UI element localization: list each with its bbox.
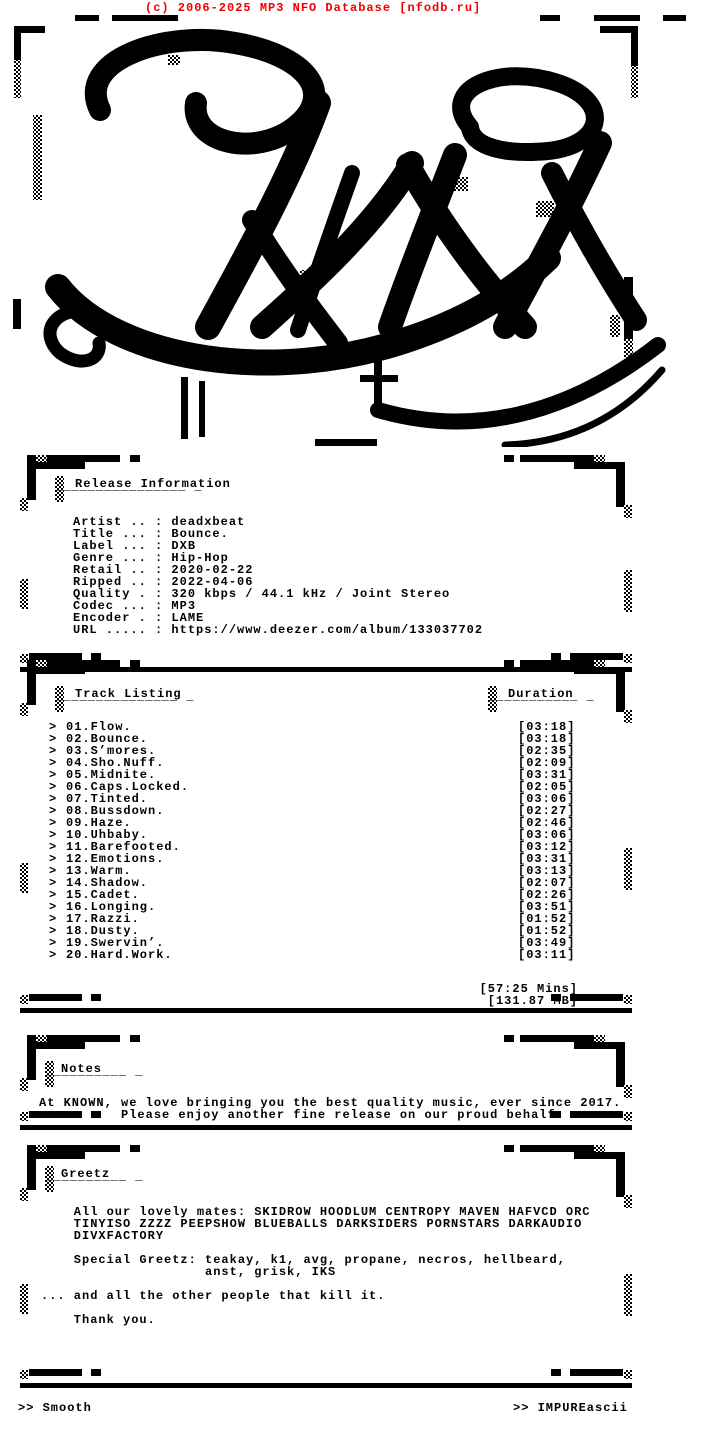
- known-ascii-logo: sM: [0, 15, 720, 447]
- logo-sm-mark: sM: [582, 122, 600, 137]
- greetz-text: All our lovely mates: SKIDROW HOODLUM CE…: [41, 1206, 590, 1326]
- track-row: > 20.Hard.Work. [03:11]: [49, 949, 578, 961]
- release-info-box: Release Information ¯¯¯¯¯¯¯¯¯¯¯¯¯¯¯¯ ¯ A…: [20, 450, 632, 672]
- track-title: 12.Emotions.: [66, 853, 518, 865]
- track-listing-box: Track Listing ¯¯¯¯¯¯¯¯¯¯¯¯¯¯¯ ¯ Duration…: [20, 655, 632, 1013]
- section-underline: ¯¯¯¯¯¯¯¯¯¯ ¯: [45, 1180, 143, 1192]
- section-underline: ¯¯¯¯¯¯¯¯¯¯¯ ¯: [488, 700, 595, 712]
- release-info-lines: Artist .. : deadxbeat Title ... : Bounce…: [73, 516, 483, 636]
- section-underline: ¯¯¯¯¯¯¯¯¯¯¯¯¯¯¯ ¯: [55, 700, 194, 712]
- track-prefix: >: [49, 949, 66, 961]
- footer-group-name: >> Smooth: [18, 1402, 92, 1414]
- section-underline: ¯¯¯¯¯¯¯¯¯¯¯¯¯¯¯¯ ¯: [55, 490, 203, 502]
- notes-text: At KNOWN, we love bringing you the best …: [39, 1097, 621, 1121]
- footer-ascii-credit: >> IMPUREascii: [513, 1402, 628, 1414]
- section-underline: ¯¯¯¯¯¯¯¯¯¯ ¯: [45, 1075, 143, 1087]
- total-size: [131.87 MB]: [478, 995, 578, 1007]
- track-title: 20.Hard.Work.: [66, 949, 518, 961]
- track-duration: [03:11]: [518, 949, 578, 961]
- greetz-box: Greetz ¯¯¯¯¯¯¯¯¯¯ ¯ All our lovely mates…: [20, 1140, 632, 1388]
- track-rows: > 01.Flow. [03:18] > 02.Bounce. [03:18] …: [49, 721, 578, 961]
- nfodb-banner: (c) 2006-2025 MP3 NFO Database [nfodb.ru…: [145, 2, 481, 14]
- notes-box: Notes ¯¯¯¯¯¯¯¯¯¯ ¯ At KNOWN, we love bri…: [20, 1030, 632, 1130]
- track-title: 08.Bussdown.: [66, 805, 518, 817]
- track-totals: [57:25 Mins] [131.87 MB]: [478, 983, 578, 1007]
